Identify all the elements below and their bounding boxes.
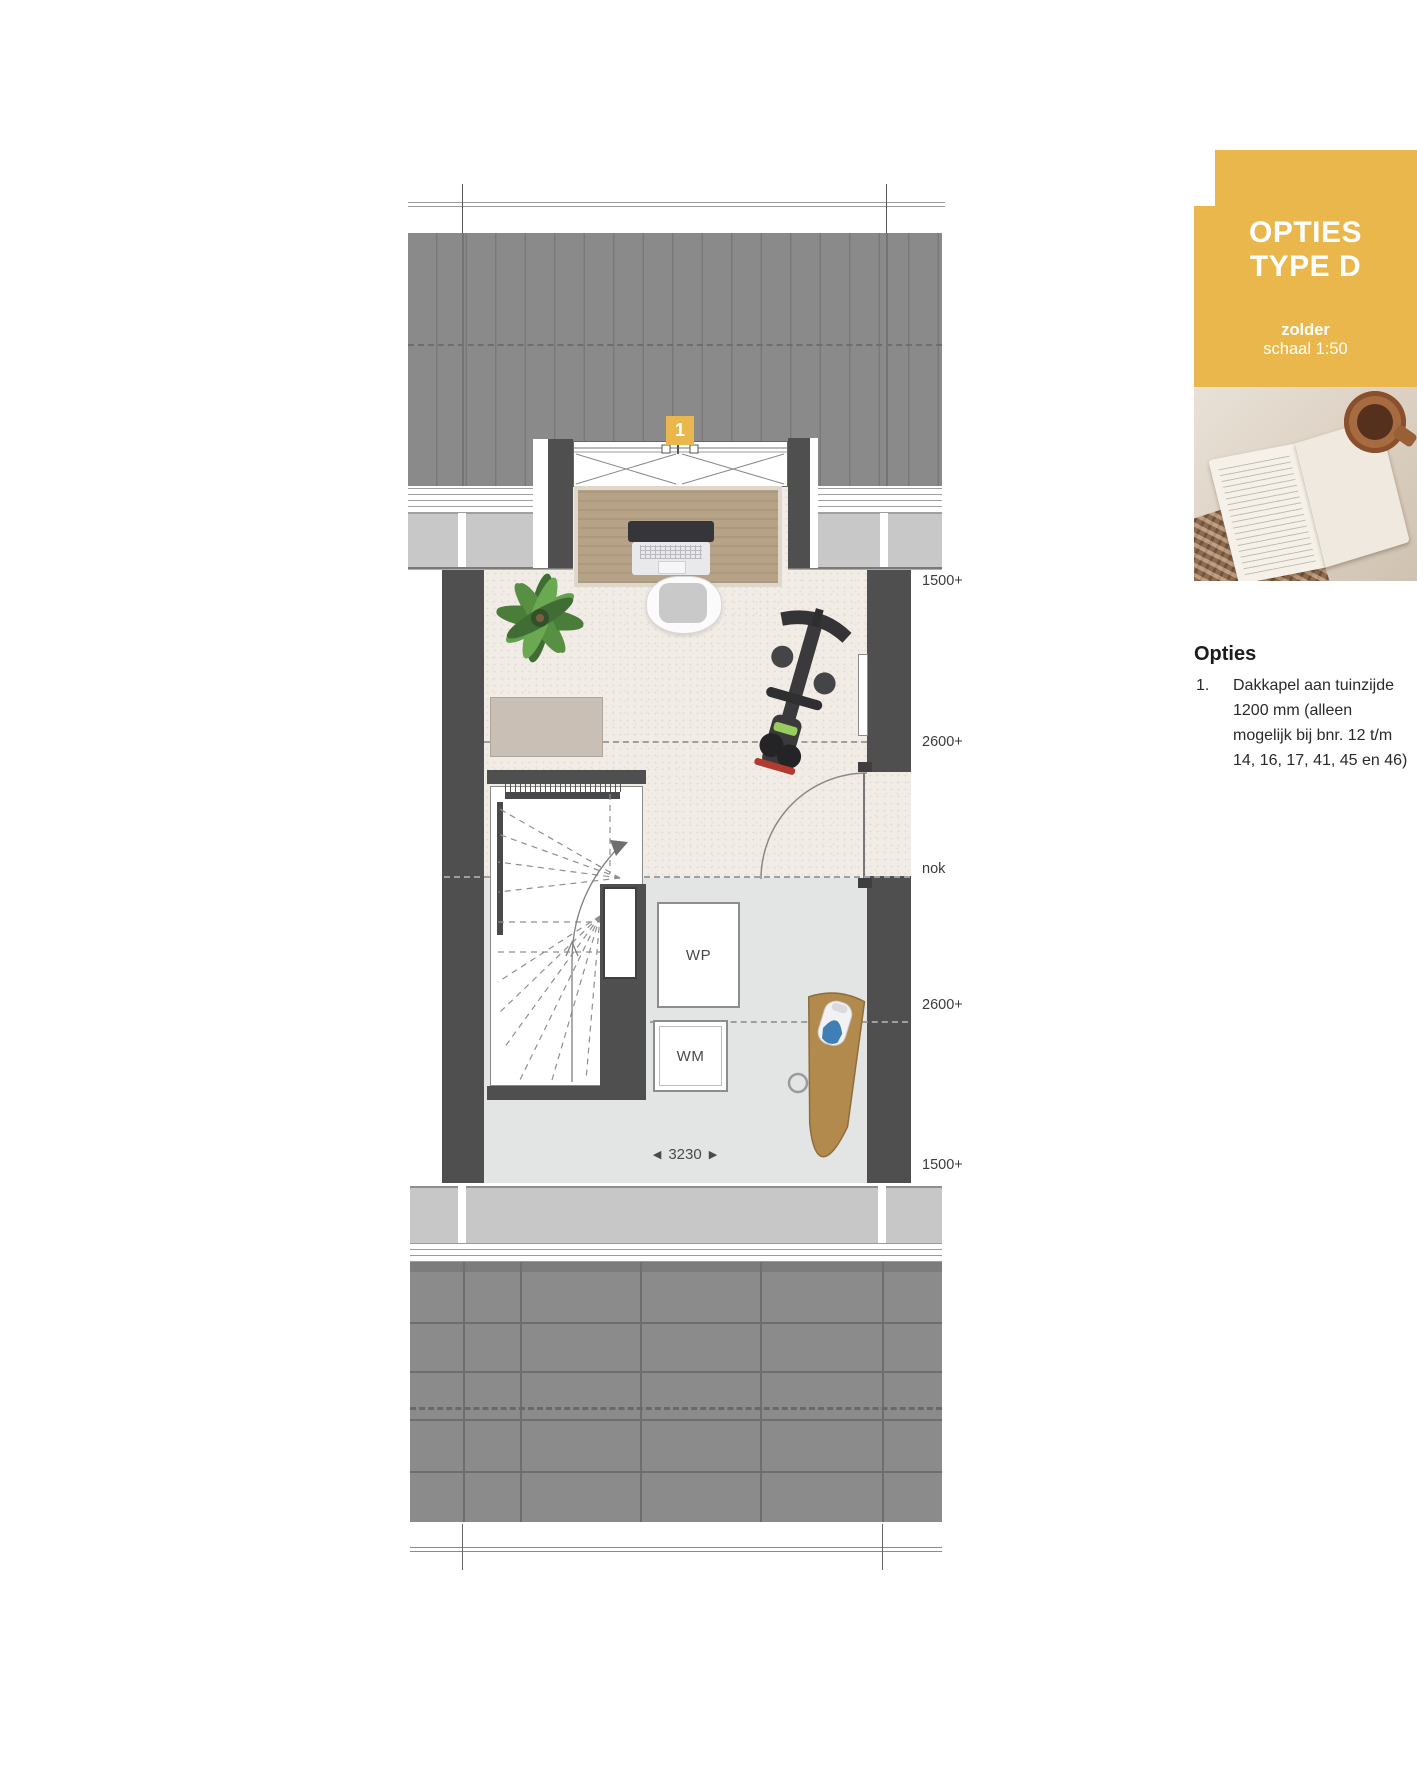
width-dimension: ◀ 3230 ▶ — [640, 1146, 730, 1163]
option-item-1: 1. Dakkapel aan tuinzijde 1200 mm (allee… — [1196, 673, 1408, 773]
dormer-gap-left — [533, 439, 548, 568]
party-wall-line-right — [886, 233, 888, 486]
washing-machine-box: WM — [653, 1020, 728, 1092]
mood-photo — [1194, 387, 1417, 581]
dimension-arrow-left-icon: ◀ — [653, 1148, 661, 1161]
floor-name: zolder — [1194, 321, 1417, 340]
height-label-2600-top: 2600+ — [922, 734, 963, 750]
page-subtitle: zolder schaal 1:50 — [1194, 321, 1417, 359]
bottom-axis-tick-right — [882, 1524, 883, 1570]
top-axis-line — [408, 202, 945, 203]
washing-machine-label: WM — [677, 1048, 705, 1065]
dormer-window-glazing — [574, 442, 787, 486]
exercise-bike — [728, 600, 878, 795]
page-title-line1: OPTIES — [1194, 216, 1417, 250]
axis-tick-right — [886, 184, 887, 233]
bottom-axis-tick-left — [462, 1524, 463, 1570]
height-label-nok: nok — [922, 861, 945, 877]
top-axis-line-2 — [408, 206, 945, 207]
eaves-band-joint-right — [880, 513, 888, 567]
height-label-1500-top: 1500+ — [922, 573, 963, 589]
stair-landing-wall — [603, 887, 637, 979]
dormer-cheek-wall-right — [788, 438, 810, 568]
bottom-band-joint-right — [878, 1186, 886, 1243]
height-label-2600-bottom: 2600+ — [922, 997, 963, 1013]
roof-bottom-edge — [410, 1262, 942, 1272]
option-marker-label: 1 — [675, 420, 685, 441]
bottom-eaves-band — [410, 1186, 942, 1243]
bottom-axis-line-2 — [410, 1551, 942, 1552]
dormer-cheek-wall-left — [548, 439, 573, 568]
eaves-band-joint-left — [458, 513, 466, 567]
roof-bottom-dashed-line — [410, 1407, 942, 1410]
chair-seat — [659, 583, 707, 623]
options-heading: Opties — [1194, 643, 1256, 666]
dimension-arrow-right-icon: ▶ — [709, 1148, 717, 1161]
bottom-band-joint-left — [458, 1186, 466, 1243]
bottom-gutter-stripes — [410, 1243, 942, 1262]
axis-tick-left — [462, 184, 463, 233]
scale-note: schaal 1:50 — [1263, 340, 1347, 358]
desk-chair — [646, 576, 722, 634]
brochure-page: 1 — [0, 0, 1417, 1772]
laptop-trackpad — [658, 561, 686, 574]
page-title-line2: TYPE D — [1194, 250, 1417, 284]
page-title: OPTIES TYPE D — [1194, 216, 1417, 284]
heat-pump-box: WP — [657, 902, 740, 1008]
dimension-value: 3230 — [668, 1146, 701, 1163]
heat-pump-label: WP — [686, 947, 711, 964]
storage-mat — [490, 697, 603, 757]
option-item-number: 1. — [1196, 673, 1233, 773]
height-label-1500-bottom: 1500+ — [922, 1157, 963, 1173]
photo-mug — [1344, 391, 1406, 453]
bottom-axis-line — [410, 1547, 942, 1548]
roof-bottom — [410, 1262, 942, 1522]
laptop-lid — [628, 521, 714, 542]
ironing-board — [780, 985, 880, 1170]
option-item-text: Dakkapel aan tuinzijde 1200 mm (alleen m… — [1233, 673, 1408, 773]
dormer-window — [573, 441, 788, 487]
roof-top-dashed-line — [408, 344, 942, 346]
dormer-gap-right — [810, 438, 818, 568]
stair-wall-bottom — [487, 1086, 646, 1100]
stair-wall-top — [487, 770, 646, 784]
party-wall-line-left — [462, 233, 464, 486]
title-card-notch — [1215, 150, 1417, 206]
option-marker-badge: 1 — [666, 416, 694, 445]
